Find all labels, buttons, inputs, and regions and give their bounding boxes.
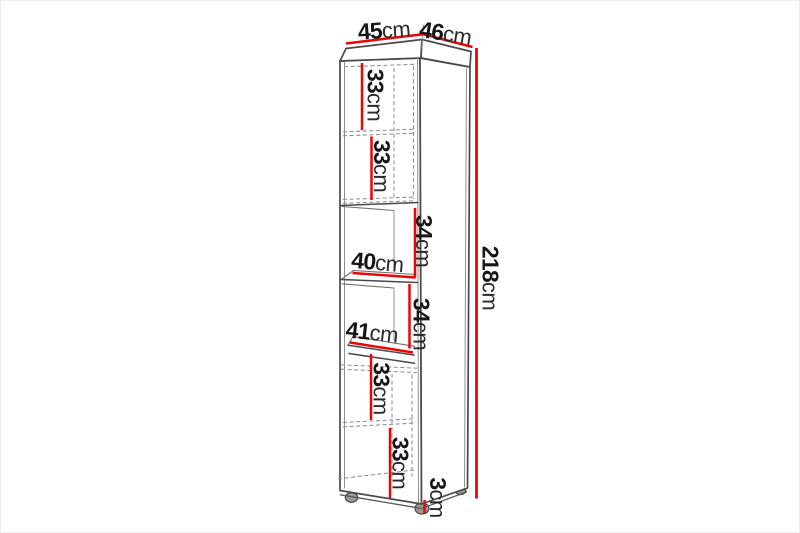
cabinet-dimension-diagram: 45cm 46cm 218cm 33cm 33cm 34cm 40cm 34cm… (1, 1, 800, 533)
dimension-label-section5: 33cm (369, 362, 395, 414)
dimension-label-section3: 34cm (411, 215, 437, 267)
dimension-label-section1: 33cm (363, 69, 389, 121)
dimension-label-section6: 33cm (388, 437, 414, 489)
dimension-label-section2: 33cm (369, 140, 395, 192)
dimension-label-feet-height: 3cm (425, 477, 451, 517)
diagram-canvas: 45cm 46cm 218cm 33cm 33cm 34cm 40cm 34cm… (0, 0, 800, 533)
dimension-label-shelf-width-lower: 41cm (345, 316, 400, 347)
dimension-label-section4: 34cm (409, 298, 435, 350)
side-panel (420, 58, 470, 504)
dimension-label-total-height: 218cm (478, 246, 504, 310)
dimension-label-shelf-width-upper: 40cm (350, 247, 404, 277)
dimension-label-top-width: 45cm (357, 15, 411, 45)
